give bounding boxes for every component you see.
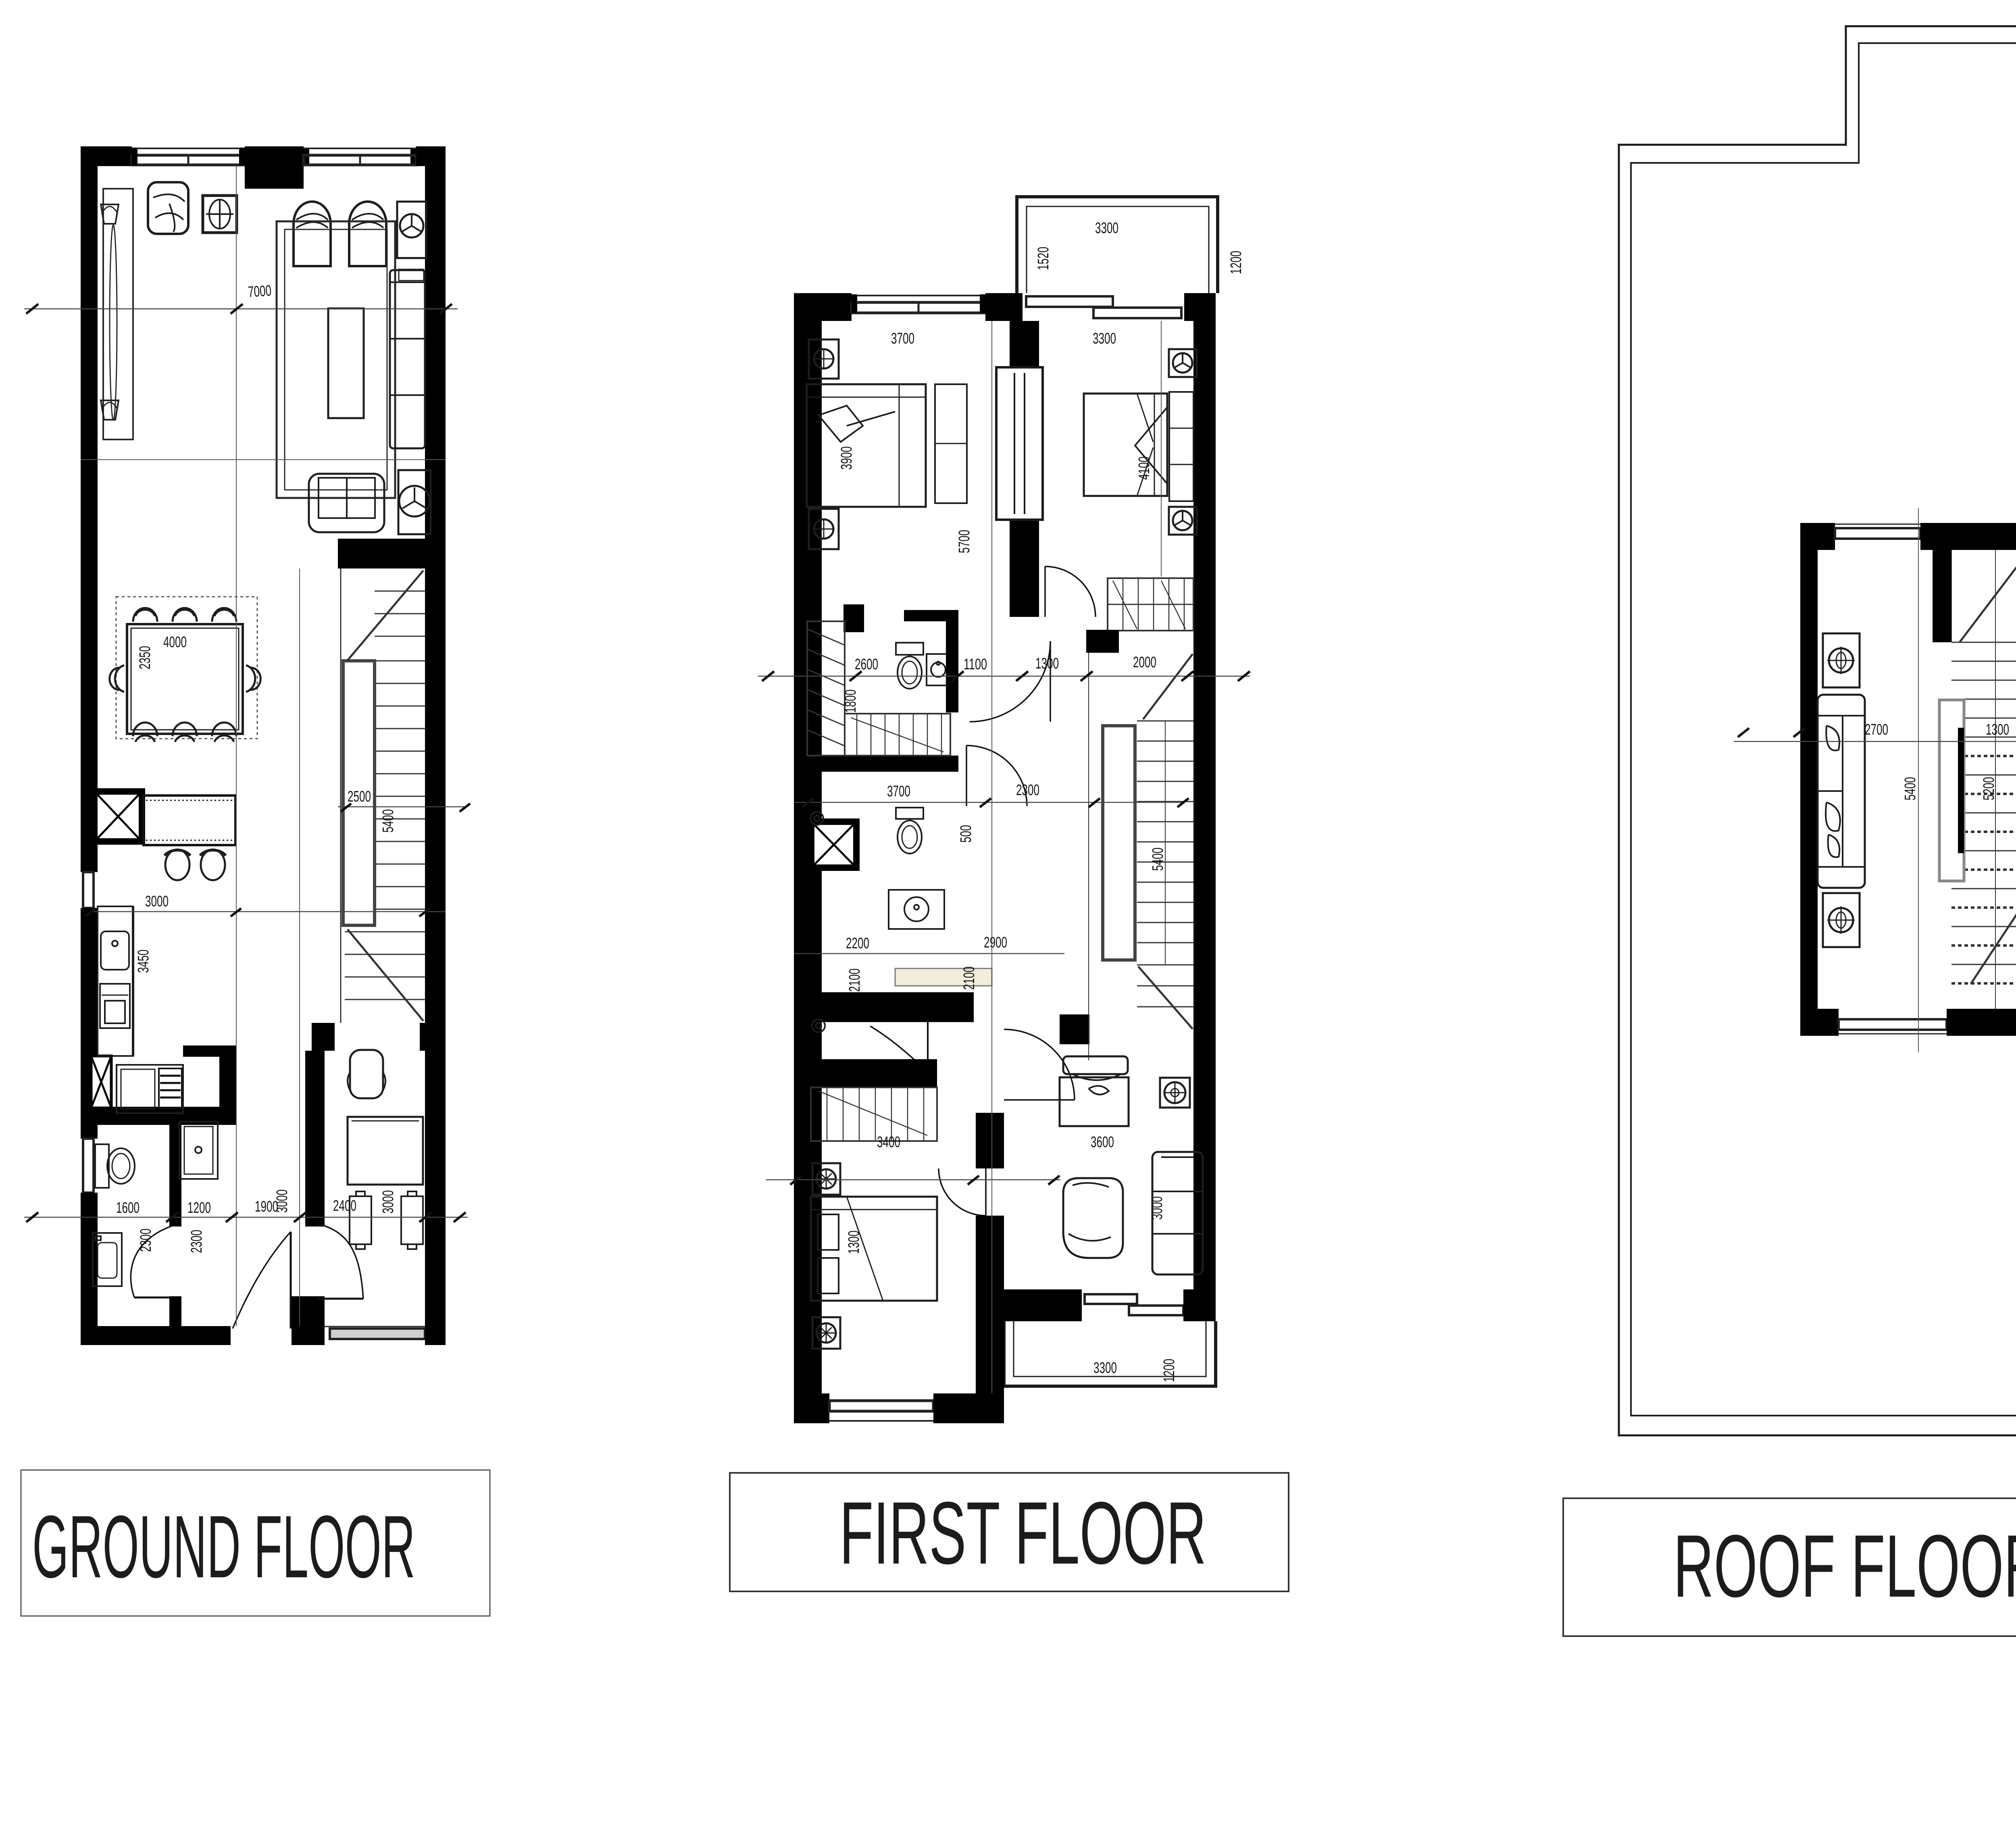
svg-text:3700: 3700 xyxy=(891,330,914,347)
svg-text:2300: 2300 xyxy=(1016,782,1039,799)
svg-text:3000: 3000 xyxy=(145,893,169,910)
svg-text:2300: 2300 xyxy=(188,1230,205,1253)
svg-text:3300: 3300 xyxy=(1093,1360,1117,1376)
svg-text:GROUND FLOOR: GROUND FLOOR xyxy=(32,1497,415,1596)
svg-text:1200: 1200 xyxy=(187,1199,211,1216)
svg-text:4100: 4100 xyxy=(1136,456,1153,480)
svg-text:3000: 3000 xyxy=(380,1190,397,1214)
svg-text:1200: 1200 xyxy=(1228,251,1245,274)
svg-text:500: 500 xyxy=(958,825,975,843)
svg-text:1300: 1300 xyxy=(846,1231,862,1254)
svg-text:1800: 1800 xyxy=(842,689,859,713)
svg-text:3400: 3400 xyxy=(877,1134,900,1151)
svg-text:2900: 2900 xyxy=(984,934,1007,951)
svg-text:5700: 5700 xyxy=(956,530,973,553)
svg-text:2100: 2100 xyxy=(846,968,863,992)
svg-text:2600: 2600 xyxy=(855,656,878,673)
svg-text:2400: 2400 xyxy=(333,1197,356,1214)
svg-text:5400: 5400 xyxy=(1150,848,1166,871)
svg-text:FIRST FLOOR: FIRST FLOOR xyxy=(839,1483,1206,1583)
svg-text:1600: 1600 xyxy=(116,1199,140,1216)
svg-text:7000: 7000 xyxy=(248,282,272,301)
svg-text:4000: 4000 xyxy=(163,634,187,651)
svg-text:3450: 3450 xyxy=(135,950,152,973)
svg-text:1200: 1200 xyxy=(1161,1359,1178,1382)
svg-text:5200: 5200 xyxy=(1981,777,1997,800)
svg-text:5400: 5400 xyxy=(380,809,397,833)
svg-text:3000: 3000 xyxy=(1149,1196,1166,1220)
svg-text:2350: 2350 xyxy=(137,646,154,669)
svg-text:3000: 3000 xyxy=(274,1189,291,1213)
svg-text:5400: 5400 xyxy=(1902,777,1919,800)
svg-text:2700: 2700 xyxy=(1865,721,1888,738)
svg-text:2100: 2100 xyxy=(961,966,978,990)
svg-text:1300: 1300 xyxy=(1035,655,1059,672)
svg-text:1520: 1520 xyxy=(1035,247,1052,270)
svg-text:3300: 3300 xyxy=(1095,220,1118,237)
svg-text:2300: 2300 xyxy=(137,1229,154,1252)
svg-text:2500: 2500 xyxy=(348,788,371,805)
svg-text:2200: 2200 xyxy=(846,935,869,952)
svg-text:1300: 1300 xyxy=(1986,721,2009,738)
svg-text:3900: 3900 xyxy=(838,446,855,470)
svg-text:1100: 1100 xyxy=(964,656,987,673)
svg-text:3700: 3700 xyxy=(887,783,910,800)
svg-text:3600: 3600 xyxy=(1091,1134,1114,1151)
svg-text:ROOF FLOOR: ROOF FLOOR xyxy=(1673,1516,2016,1616)
svg-text:2000: 2000 xyxy=(1133,654,1156,671)
svg-text:3300: 3300 xyxy=(1093,330,1116,347)
